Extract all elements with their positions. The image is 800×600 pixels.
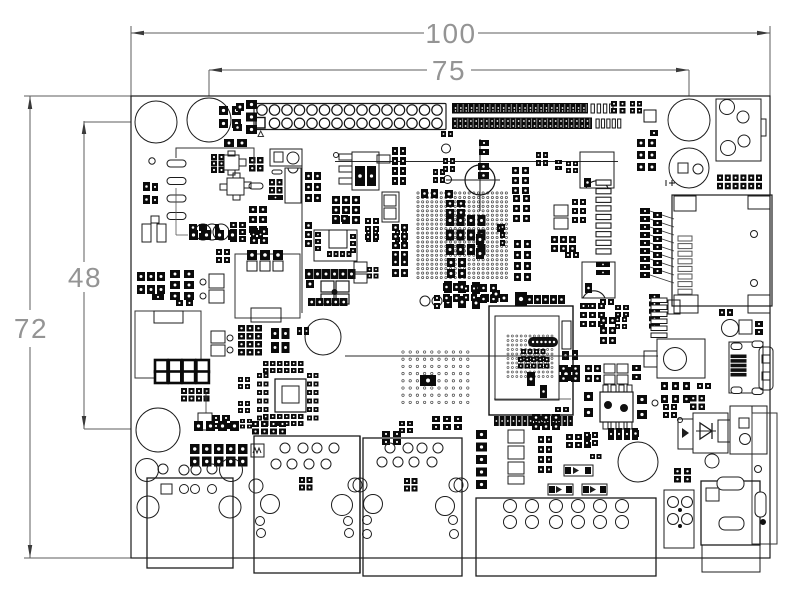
svg-text:48: 48	[68, 262, 102, 293]
svg-text:75: 75	[432, 55, 466, 86]
svg-text:72: 72	[14, 313, 48, 344]
svg-text:100: 100	[425, 18, 476, 49]
